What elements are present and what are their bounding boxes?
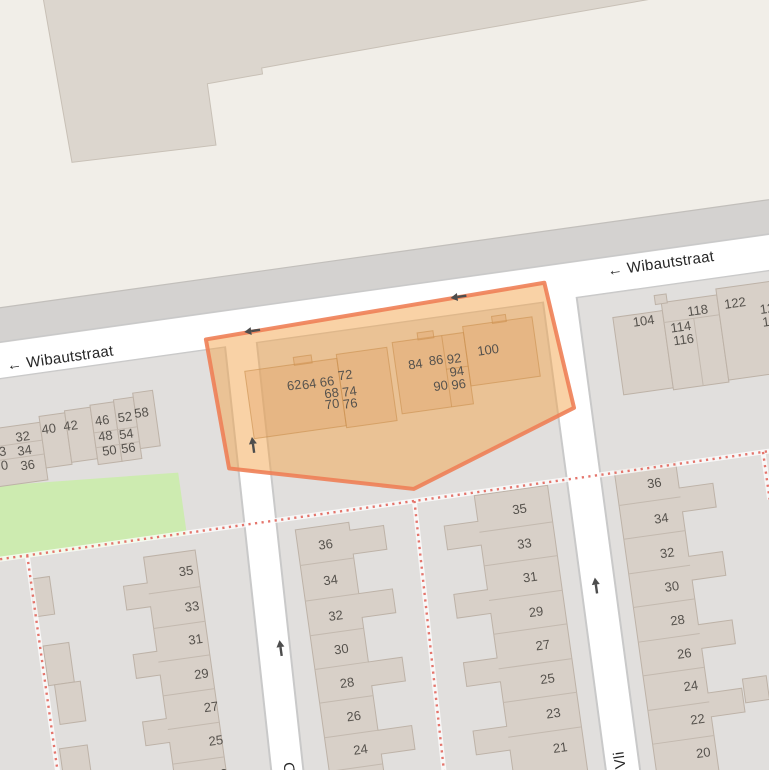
house-number: 70: [324, 396, 340, 413]
house-number: 20: [695, 744, 711, 761]
house-number: 27: [535, 637, 551, 654]
house-number: 33: [184, 598, 200, 615]
house-number: 42: [62, 417, 78, 434]
house-number: 72: [337, 366, 353, 383]
house-number: 31: [522, 569, 538, 586]
house-number: 96: [450, 376, 466, 393]
house-number: 104: [632, 312, 656, 330]
house-number: 36: [19, 457, 35, 474]
street-label-side-street-vli: Vli: [610, 750, 629, 770]
house-number: 33: [516, 535, 532, 552]
house-number: 27: [203, 698, 219, 715]
house-number: 29: [528, 603, 544, 620]
house-number: 23: [545, 705, 561, 722]
house-number: 24: [352, 741, 368, 758]
house-number: 32: [659, 544, 675, 561]
house-number: 36: [317, 536, 333, 553]
house-number: 56: [120, 439, 136, 456]
small-building: [43, 642, 74, 685]
house-number: 58: [133, 404, 149, 421]
map-svg[interactable]: 6264667268747076848692949096100104118122…: [0, 0, 769, 770]
map-canvas[interactable]: 6264667268747076848692949096100104118122…: [0, 0, 769, 770]
house-number: 22: [689, 711, 705, 728]
house-number: 28: [339, 674, 355, 691]
small-building: [55, 681, 86, 724]
house-number: 40: [41, 420, 57, 437]
house-number: 28: [669, 612, 685, 629]
house-number: 29: [193, 665, 209, 682]
house-number: 34: [653, 510, 669, 527]
house-number: 50: [101, 442, 117, 459]
house-number: 35: [511, 500, 527, 517]
house-number: 35: [178, 563, 194, 580]
house-number: 100: [476, 341, 500, 359]
house-number: 26: [676, 645, 692, 662]
house-number: 30: [333, 641, 349, 658]
house-number: 118: [686, 301, 709, 319]
house-number: 1: [761, 314, 769, 330]
house-number: 31: [187, 631, 203, 648]
house-number: 64: [301, 376, 317, 393]
house-number: 90: [432, 377, 448, 394]
house-number: 122: [723, 294, 747, 312]
house-number: 25: [208, 732, 224, 749]
house-number: 86: [428, 352, 444, 369]
house-number: 30: [664, 578, 680, 595]
house-number: 32: [327, 607, 343, 624]
house-number: 52: [117, 409, 133, 426]
house-number: 62: [286, 377, 302, 394]
house-number: 36: [646, 474, 662, 491]
house-number: 25: [539, 670, 555, 687]
house-number: 84: [407, 356, 423, 373]
house-number: 46: [94, 412, 110, 429]
house-number: 26: [346, 708, 362, 725]
house-number: 34: [322, 571, 338, 588]
house-number: 116: [672, 331, 695, 349]
house-number: 24: [683, 677, 699, 694]
house-number: 76: [342, 395, 358, 412]
house-number: 21: [552, 739, 568, 756]
